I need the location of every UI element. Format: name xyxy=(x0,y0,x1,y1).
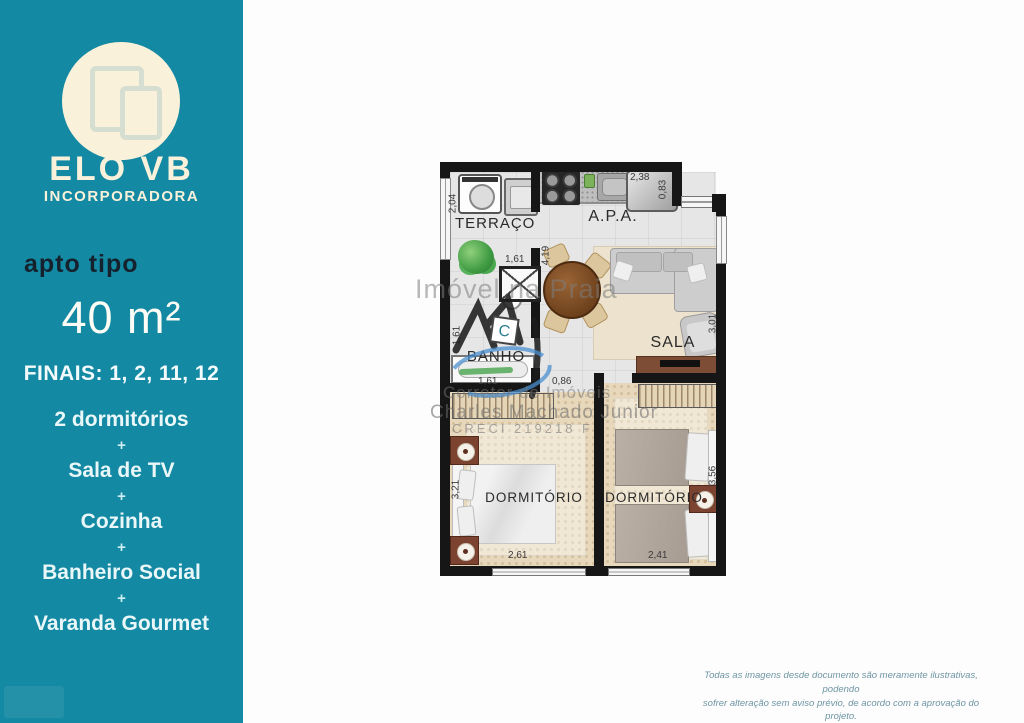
plus-separator: + xyxy=(117,434,126,457)
lamp-icon xyxy=(457,443,475,461)
dim-dorm2-w: 2,41 xyxy=(648,550,667,561)
stove xyxy=(542,171,580,205)
window xyxy=(716,216,727,264)
nightstand xyxy=(450,536,479,565)
plus-separator: + xyxy=(117,485,126,508)
dim-terraco-h: 2,04 xyxy=(448,189,459,219)
feature-list: 2 dormitórios + Sala de TV + Cozinha + B… xyxy=(0,406,243,638)
nightstand xyxy=(450,436,479,465)
brand-subtitle: INCORPORADORA xyxy=(0,188,243,205)
window xyxy=(681,196,716,208)
unit-finals: FINAIS: 1, 2, 11, 12 xyxy=(0,362,243,386)
building-icon xyxy=(120,86,162,140)
apartment-type-label: apto tipo xyxy=(24,250,139,279)
disclaimer-line1: Todas as imagens desde documento são mer… xyxy=(704,670,978,695)
feature-item: Banheiro Social xyxy=(42,559,201,587)
wall-sala-bottom xyxy=(632,373,726,383)
dim-dorm1-h: 3,21 xyxy=(451,475,462,505)
dim-fridge-w: 2,38 xyxy=(630,172,649,183)
plus-separator: + xyxy=(117,536,126,559)
brand-name: ELO VB xyxy=(0,150,243,189)
feature-item: Cozinha xyxy=(81,508,163,536)
tv xyxy=(660,360,700,367)
disclaimer-line2: sofrer alteração sem aviso prévio, de ac… xyxy=(703,698,979,723)
dim-dorm2-h: 3,56 xyxy=(708,461,719,491)
apartment-area: 40 m² xyxy=(0,292,243,344)
sidebar: ELO VB INCORPORADORA apto tipo 40 m² FIN… xyxy=(0,0,243,723)
feature-item: Sala de TV xyxy=(68,457,174,485)
dorm1-label: DORMITÓRIO xyxy=(478,490,590,505)
corner-watermark xyxy=(4,686,64,718)
window xyxy=(608,568,690,576)
window xyxy=(492,568,586,576)
apa-label: A.P.A. xyxy=(578,208,648,226)
plant xyxy=(458,240,494,274)
plus-separator: + xyxy=(117,587,126,610)
wall-top xyxy=(440,162,682,172)
dim-dorm1-w: 2,61 xyxy=(508,550,527,561)
pillow xyxy=(456,505,476,537)
legal-disclaimer: Todas as imagens desde documento são mer… xyxy=(686,669,996,723)
lamp-icon xyxy=(457,543,475,561)
washing-machine xyxy=(458,174,502,214)
dim-terraco-w: 1,61 xyxy=(505,254,524,265)
dim-sala-h: 3,01 xyxy=(708,309,719,339)
watermark-role: Corretor de Imóveis xyxy=(443,383,611,403)
single-bed xyxy=(615,429,689,486)
dim-apa-h: 4,19 xyxy=(541,241,552,271)
wall-terraco-kitchen xyxy=(531,162,540,212)
sala-label: SALA xyxy=(648,334,698,352)
brochure-page: ELO VB INCORPORADORA apto tipo 40 m² FIN… xyxy=(0,0,1024,723)
feature-item: 2 dormitórios xyxy=(54,406,188,434)
watermark-creci: CRECI 219218 F xyxy=(452,421,593,436)
company-logo xyxy=(62,42,180,160)
dorm2-label: DORMITÓRIO xyxy=(600,490,708,505)
terraco-label: TERRAÇO xyxy=(455,215,535,232)
logo-letter: C xyxy=(497,322,511,340)
dim-fridge-d: 0,83 xyxy=(658,175,669,205)
counter-item xyxy=(584,174,595,188)
feature-item: Varanda Gourmet xyxy=(34,610,209,638)
